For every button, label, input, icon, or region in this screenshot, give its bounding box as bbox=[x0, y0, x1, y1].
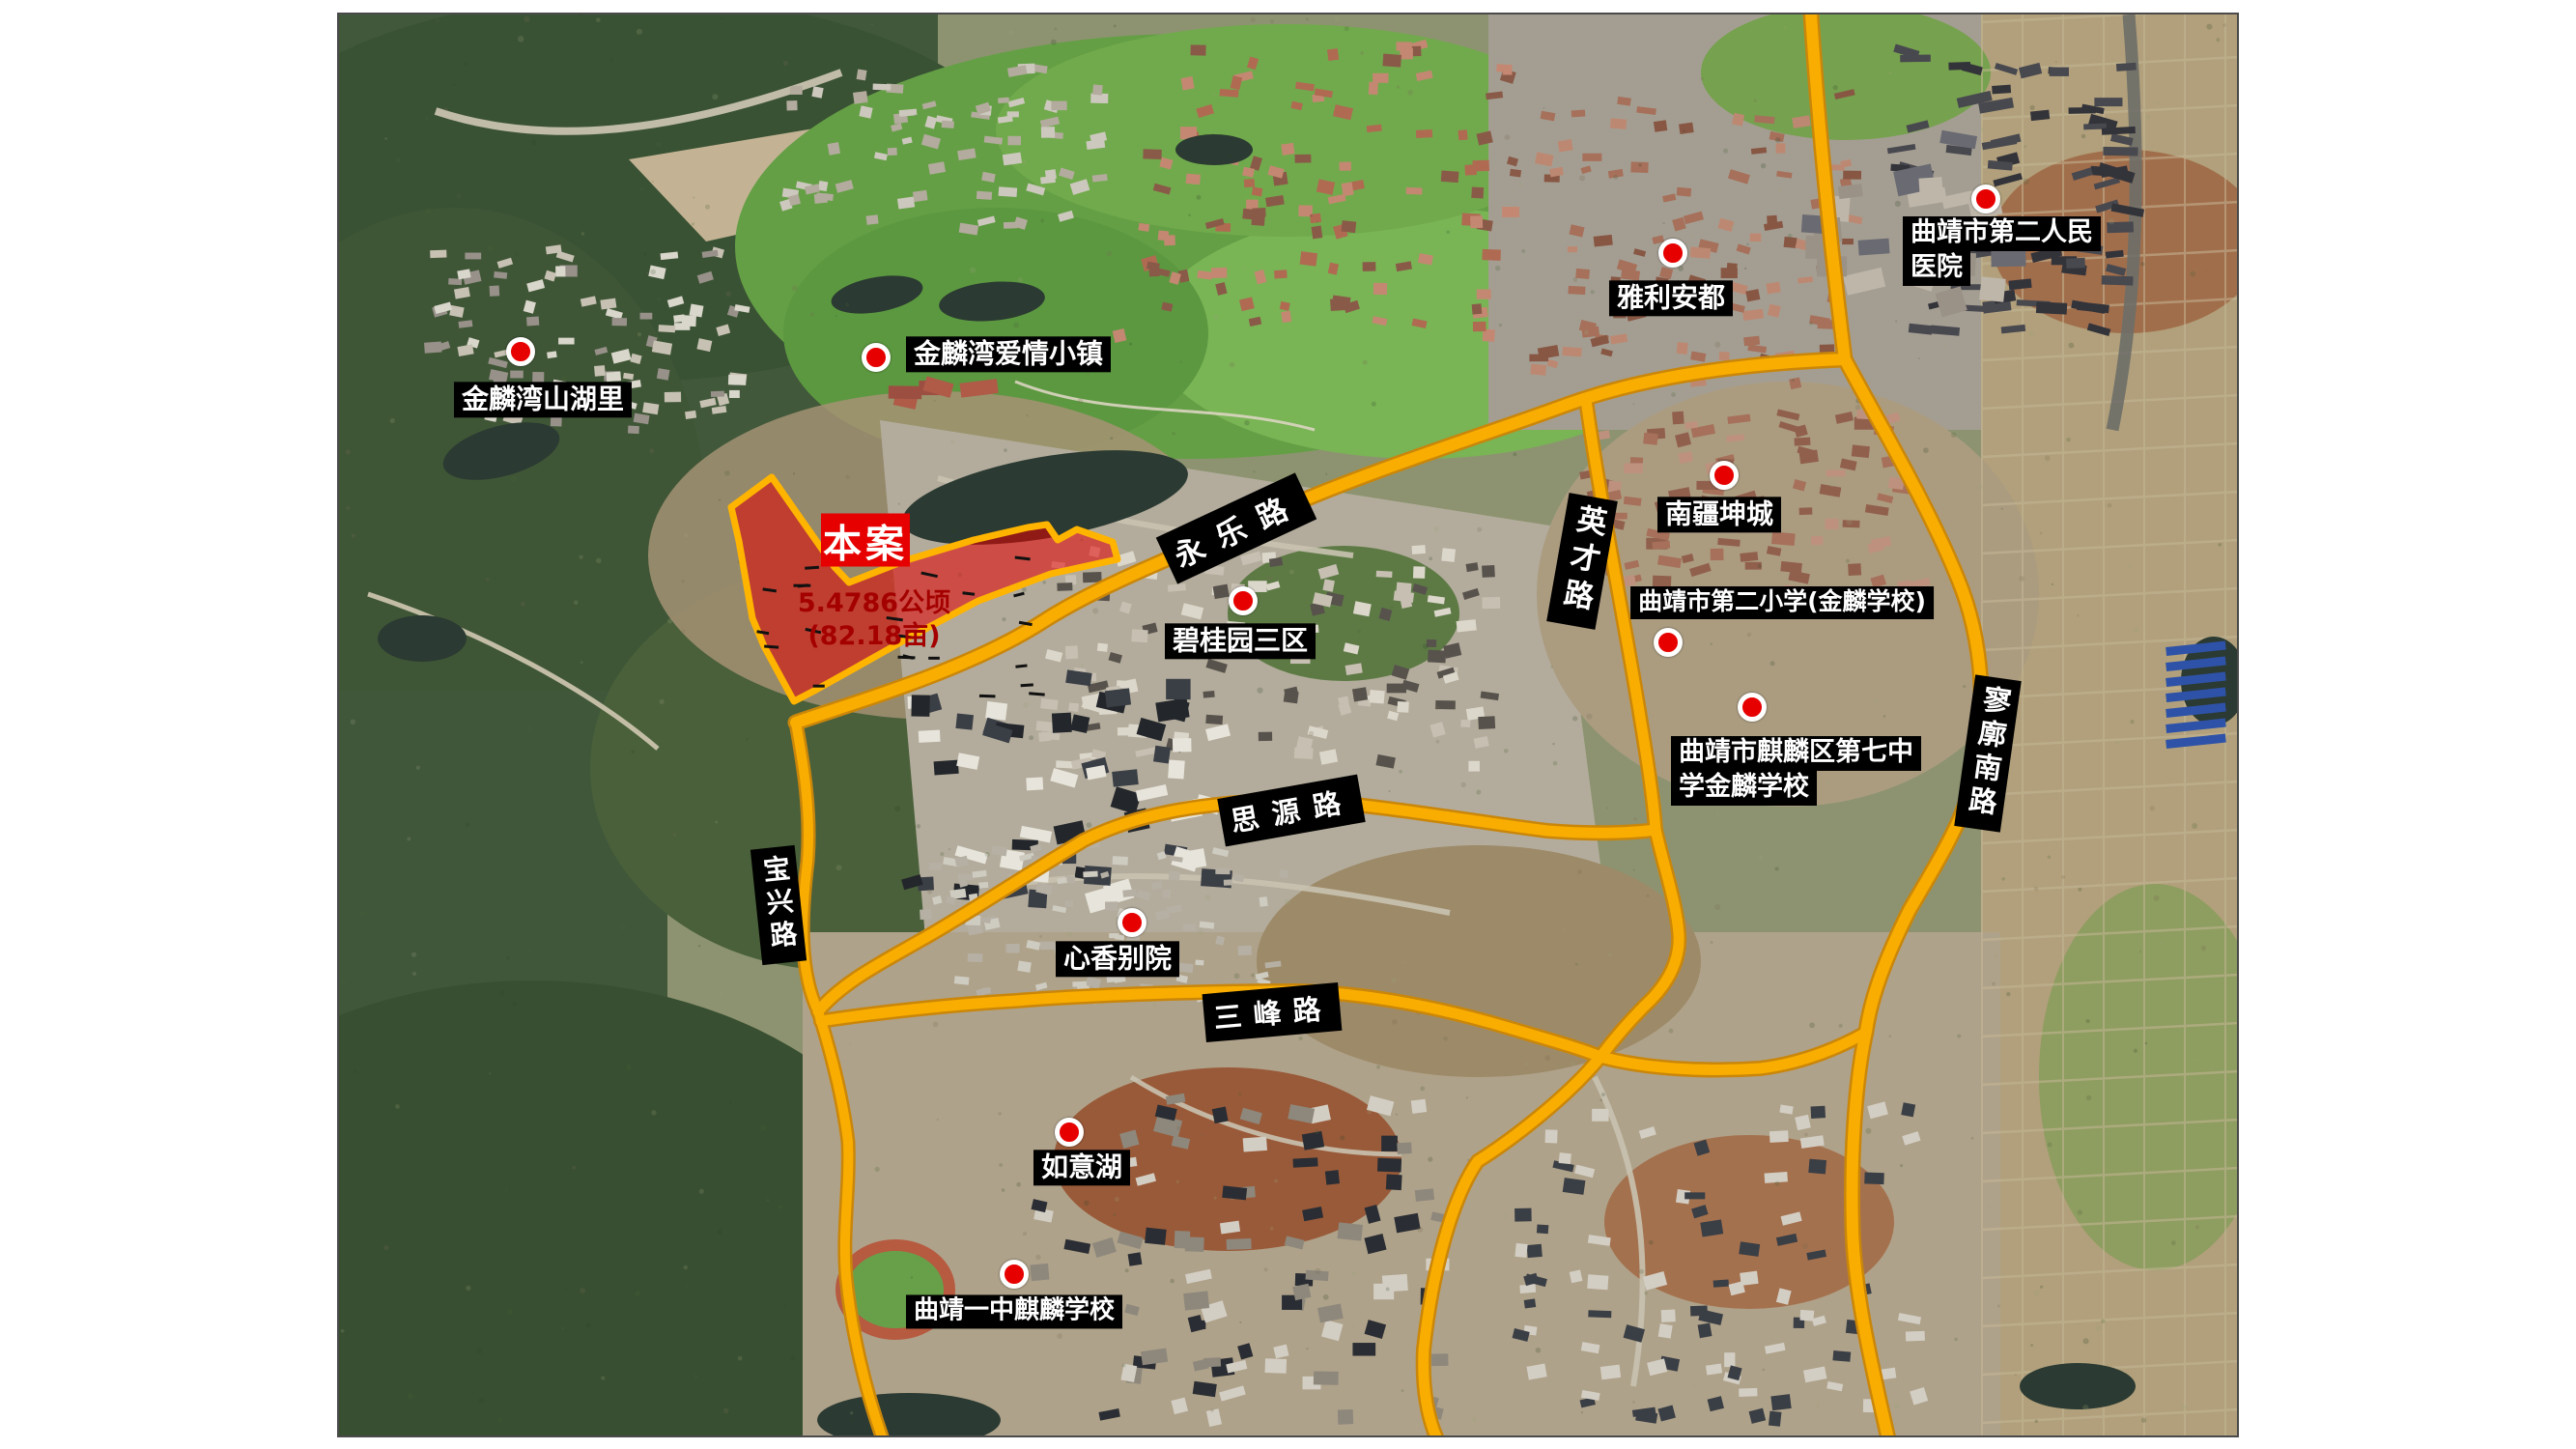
qujing-second-peoples-hospital-text: 曲靖市第二人民 bbox=[1903, 216, 2101, 251]
xinxiang-bieyuan-text: 心香别院 bbox=[1056, 941, 1179, 977]
qilin-seventh-middle-school-label: 曲靖市麒麟区第七中学金麟学校 bbox=[1671, 736, 1921, 806]
qujing-second-primary-school-dot bbox=[1654, 628, 1683, 657]
biguiyuan-district3-text: 碧桂园三区 bbox=[1165, 623, 1316, 659]
nanjiang-kuncheng-label: 南疆坤城 bbox=[1657, 497, 1781, 532]
biguiyuan-district3-label: 碧桂园三区 bbox=[1165, 623, 1316, 659]
yalian-capital-label: 雅利安都 bbox=[1609, 280, 1733, 316]
yalian-capital-dot bbox=[1658, 239, 1687, 268]
qujing-second-primary-school-label: 曲靖市第二小学(金麟学校) bbox=[1630, 586, 1934, 619]
qilin-seventh-middle-school-text: 曲靖市麒麟区第七中 bbox=[1671, 736, 1921, 771]
qujing-no1-qilin-school-dot bbox=[1000, 1260, 1029, 1289]
jinlinwan-love-town-text: 金麟湾爱情小镇 bbox=[906, 336, 1111, 372]
site-tag-benan: 本案 bbox=[821, 514, 910, 567]
qujing-second-peoples-hospital-label: 曲靖市第二人民医院 bbox=[1903, 216, 2101, 286]
jinlinwan-love-town-dot bbox=[862, 343, 891, 372]
yalian-capital-text: 雅利安都 bbox=[1609, 280, 1733, 316]
ruyi-lake-text: 如意湖 bbox=[1033, 1150, 1130, 1185]
slide-canvas: 本案 5.4786公顷 (82.18亩) 金麟湾山湖里金麟湾爱情小镇雅利安都曲靖… bbox=[0, 0, 2576, 1449]
qujing-second-peoples-hospital-dot bbox=[1971, 185, 2000, 213]
xinxiang-bieyuan-label: 心香别院 bbox=[1056, 941, 1179, 977]
qujing-no1-qilin-school-label: 曲靖一中麒麟学校 bbox=[906, 1294, 1122, 1328]
qujing-second-primary-school-text: 曲靖市第二小学(金麟学校) bbox=[1630, 586, 1934, 619]
site-area-hectares: 5.4786公顷 bbox=[798, 587, 950, 620]
qujing-no1-qilin-school-text: 曲靖一中麒麟学校 bbox=[906, 1294, 1122, 1328]
jinlinwan-shanhuli-text: 金麟湾山湖里 bbox=[454, 382, 632, 417]
satellite-map: 本案 5.4786公顷 (82.18亩) 金麟湾山湖里金麟湾爱情小镇雅利安都曲靖… bbox=[337, 13, 2239, 1437]
site-area-mu: (82.18亩) bbox=[798, 620, 950, 653]
jinlinwan-shanhuli-label: 金麟湾山湖里 bbox=[454, 382, 632, 417]
qilin-seventh-middle-school-text: 学金麟学校 bbox=[1671, 771, 1817, 806]
qujing-second-peoples-hospital-text: 医院 bbox=[1903, 251, 1970, 286]
nanjiang-kuncheng-dot bbox=[1710, 461, 1739, 490]
biguiyuan-district3-dot bbox=[1229, 586, 1258, 615]
xinxiang-bieyuan-dot bbox=[1118, 908, 1146, 937]
nanjiang-kuncheng-text: 南疆坤城 bbox=[1657, 497, 1781, 532]
ruyi-lake-label: 如意湖 bbox=[1033, 1150, 1130, 1185]
qilin-seventh-middle-school-dot bbox=[1738, 693, 1767, 722]
site-area-text: 5.4786公顷 (82.18亩) bbox=[798, 587, 950, 653]
ruyi-lake-dot bbox=[1055, 1118, 1084, 1147]
jinlinwan-love-town-label: 金麟湾爱情小镇 bbox=[906, 336, 1111, 372]
jinlinwan-shanhuli-dot bbox=[506, 337, 535, 366]
